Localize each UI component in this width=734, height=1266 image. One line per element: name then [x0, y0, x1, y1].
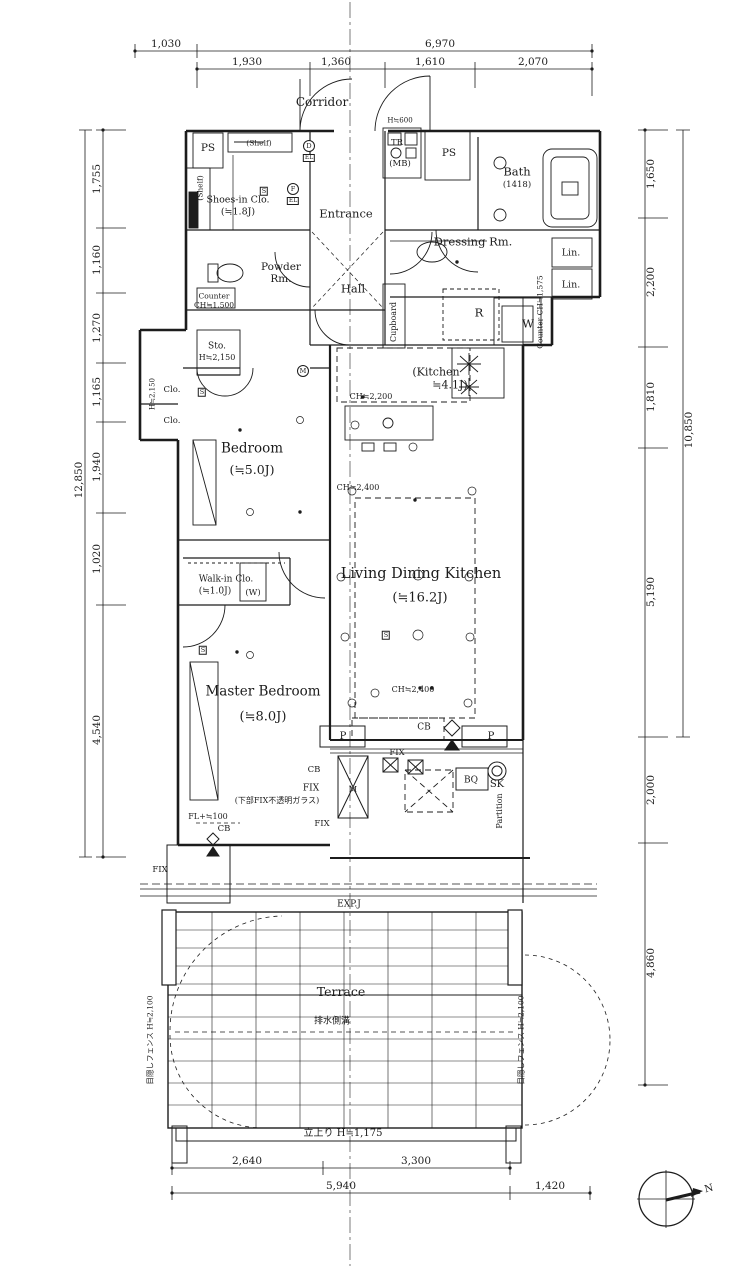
cb2-label: CB — [308, 766, 321, 775]
counter-l2-label: CH≒1,500 — [194, 301, 234, 309]
corridor-label: Corridor — [296, 96, 348, 108]
sto-h-label: H≒2,150 — [199, 354, 236, 362]
d1420-label: 1,420 — [535, 1181, 565, 1192]
tr-label: TR — [391, 139, 403, 148]
bath-size-label: (1418) — [503, 181, 531, 190]
north-label: N — [703, 1183, 714, 1196]
wic-label: Walk-in Clo. — [199, 576, 253, 585]
p1-label: P — [340, 732, 347, 742]
d5190-label: 5,190 — [646, 577, 657, 607]
d10850-label: 10,850 — [684, 412, 695, 449]
d1020-label: 1,020 — [92, 544, 103, 574]
d6970-label: 6,970 — [425, 39, 455, 50]
sS1-label: S — [260, 187, 268, 196]
d3300-label: 3,300 — [401, 1156, 431, 1167]
d1030-label: 1,030 — [151, 39, 181, 50]
sEL2-label: EL — [287, 197, 299, 205]
shoes-size-label: (≒1.8J) — [221, 207, 255, 217]
d2640-label: 2,640 — [232, 1156, 262, 1167]
h600-label: H≒600 — [387, 118, 412, 125]
shoes-label: Shoes-in Clo. — [206, 195, 269, 205]
d2200-label: 2,200 — [646, 267, 657, 297]
sto-label: Sto. — [208, 343, 226, 352]
partition-label: Partition — [496, 793, 504, 828]
bedroom-size-label: (≒5.0J) — [229, 464, 274, 477]
d1610-label: 1,610 — [415, 57, 445, 68]
sS3-label: S — [199, 646, 207, 655]
p2-label: P — [488, 732, 495, 742]
fix2-label: FIX — [303, 785, 319, 794]
shelf-side-label: (Shelf) — [196, 175, 204, 200]
sF-label: F — [287, 183, 299, 195]
sS4-label: S — [382, 631, 390, 640]
terrace-structure — [162, 910, 610, 1163]
r-label: R — [475, 307, 484, 319]
hall-label: Hall — [341, 283, 365, 295]
fix-note-label: (下部FIX不透明ガラス) — [235, 797, 320, 805]
ch2400a-label: CH≒2,400 — [337, 484, 380, 492]
w-label: W — [522, 318, 534, 330]
dimension-dots — [101, 49, 646, 1194]
m-box-label: M — [349, 786, 357, 794]
d2000-label: 2,000 — [646, 775, 657, 805]
wic-size-label: (≒1.0J) — [199, 588, 231, 597]
sM-label: M — [297, 365, 309, 377]
d1650-label: 1,650 — [646, 159, 657, 189]
lin2-label: Lin. — [562, 280, 581, 290]
bedroom-label: Bedroom — [221, 442, 283, 456]
d1810-label: 1,810 — [646, 382, 657, 412]
d5940-label: 5,940 — [326, 1181, 356, 1192]
entrance-label: Entrance — [319, 208, 372, 220]
floor-plan-linework — [0, 0, 734, 1266]
master-label: Master Bedroom — [205, 685, 320, 699]
shelf-top-label: (Shelf) — [246, 139, 271, 147]
clo1-label: Clo. — [164, 386, 181, 395]
d1165-label: 1,165 — [92, 377, 103, 407]
expj-label: EXP.J — [337, 901, 361, 910]
parapet-label: 立上り H≒1,175 — [304, 1129, 383, 1139]
counter-l1-label: Counter — [199, 292, 230, 300]
fence-l-label: 目隠しフェンス H≒2,100 — [146, 995, 154, 1084]
ch2200-label: CH≒2,200 — [350, 393, 393, 401]
sS2-label: S — [198, 388, 206, 397]
cupboard-label: Cupboard — [390, 302, 398, 342]
mb-label: (MB) — [389, 160, 411, 169]
fix1-label: FIX — [389, 749, 404, 758]
sk-label: SK — [490, 780, 504, 790]
d1930-label: 1,930 — [232, 57, 262, 68]
drain-label: 排水側溝 — [314, 1018, 350, 1027]
fl100-label: FL+≒100 — [188, 813, 228, 821]
bath-label: Bath — [503, 166, 530, 178]
d1940-label: 1,940 — [92, 452, 103, 482]
clo2-label: Clo. — [164, 417, 181, 426]
dressing-label: Dressing Rm. — [434, 236, 513, 248]
bq-label: BQ — [464, 777, 478, 786]
fix4-label: FIX — [152, 866, 167, 875]
powder2-label: Rm. — [270, 274, 291, 285]
inner-walls — [140, 131, 600, 903]
powder1-label: Powder — [261, 262, 301, 273]
lin1-label: Lin. — [562, 248, 581, 258]
terrace-label: Terrace — [317, 986, 366, 999]
d1755-label: 1,755 — [92, 164, 103, 194]
compass — [637, 1170, 703, 1228]
expansion-joint — [140, 884, 597, 896]
h2150-label: H≒2,150 — [150, 378, 157, 410]
d1360-label: 1,360 — [321, 57, 351, 68]
w-paren-label: (W) — [245, 589, 260, 598]
floor-plan: 1,0306,9701,9301,3601,6102,0701,7551,160… — [0, 0, 734, 1266]
d4860-label: 4,860 — [646, 948, 657, 978]
kitchen2-label: ≒4.1J) — [432, 380, 467, 391]
ldk-size-label: (≒16.2J) — [392, 592, 447, 605]
ps-left-label: PS — [201, 143, 215, 154]
cb1-label: CB — [417, 724, 431, 733]
ps-right-label: PS — [442, 148, 456, 159]
counter-r-label: Counter CH≒1,575 — [536, 275, 544, 348]
d1270-label: 1,270 — [92, 313, 103, 343]
fix3-label: FIX — [314, 820, 329, 829]
ldk-label: Living Dining Kitchen — [341, 567, 501, 582]
kitchen1-label: (Kitchen — [412, 367, 459, 378]
d1160-label: 1,160 — [92, 245, 103, 275]
d2070-label: 2,070 — [518, 57, 548, 68]
sEL1-label: EL — [303, 154, 315, 162]
master-size-label: (≒8.0J) — [240, 711, 287, 724]
ch2400b-label: CH≒2,400 — [392, 686, 435, 694]
cb3-label: CB — [218, 825, 231, 834]
fence-r-label: 目隠しフェンス H≒2,100 — [517, 995, 525, 1084]
sD-label: D — [303, 140, 315, 152]
d12850-label: 12,850 — [74, 462, 85, 499]
d4540-label: 4,540 — [92, 715, 103, 745]
